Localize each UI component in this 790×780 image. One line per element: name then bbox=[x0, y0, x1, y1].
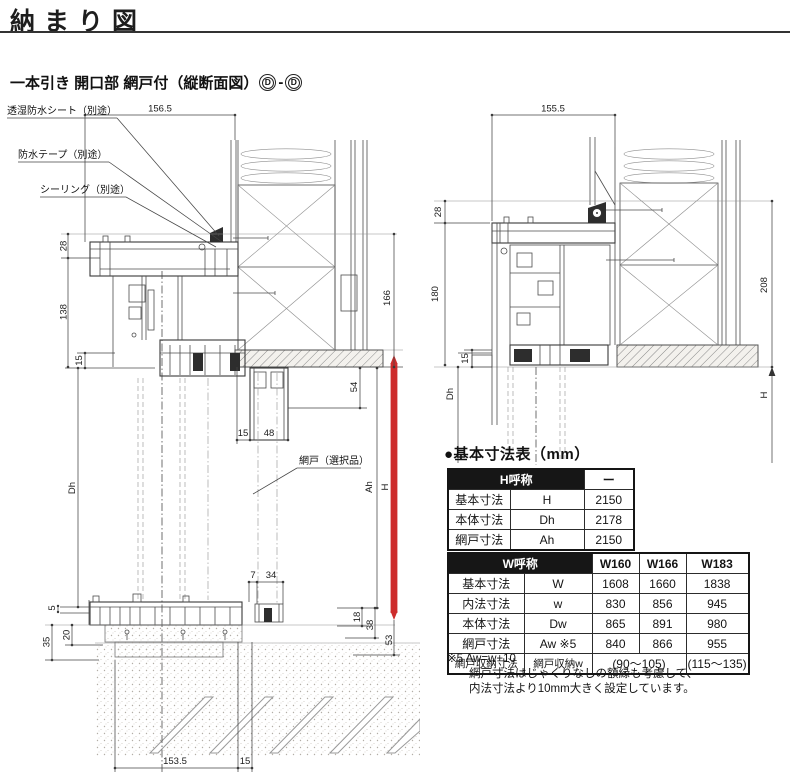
dim-label-53: 53 bbox=[384, 635, 395, 646]
insulation-hatch bbox=[624, 149, 714, 183]
callout-screen: 網戸（選択品） bbox=[299, 454, 369, 467]
section-mark-separator: - bbox=[278, 74, 283, 91]
table-row: 網戸寸法 Aw ※5 840 866 955 bbox=[448, 634, 749, 654]
left-section-drawing: 156.5 28 138 15 Dh 5 35 20 bbox=[5, 95, 420, 780]
table-row: 基本寸法 H 2150 bbox=[448, 490, 634, 510]
dim-label-screen-15: 15 bbox=[238, 428, 249, 439]
dim-label-ah: Ah bbox=[364, 481, 375, 493]
table-cell: 830 bbox=[592, 594, 639, 614]
table-cell: 本体寸法 bbox=[448, 614, 524, 634]
insulation-hatch bbox=[241, 149, 331, 183]
dim-label-left-15: 15 bbox=[74, 355, 85, 366]
table-cell: H bbox=[510, 490, 584, 510]
dim-label-18: 18 bbox=[352, 612, 363, 623]
drawing-subtitle: 一本引き 開口部 網戸付（縦断面図） D - D bbox=[10, 72, 303, 93]
dim-label-dh: Dh bbox=[67, 482, 78, 494]
dim-label-34: 34 bbox=[266, 570, 277, 581]
porch-slab bbox=[434, 345, 772, 367]
section-mark-icon: D bbox=[285, 74, 302, 91]
dimension-lines: 155.5 28 180 15 Dh 208 H bbox=[430, 104, 775, 464]
table-cell: 865 bbox=[592, 614, 639, 634]
dim-label-dh: Dh bbox=[445, 388, 456, 400]
table-cell: 2178 bbox=[584, 510, 634, 530]
table-cell: 955 bbox=[686, 634, 749, 654]
footnote-line: 網戸寸法はじゃくりなしの額縁も考慮して、 bbox=[447, 667, 777, 682]
table-cell: 網戸寸法 bbox=[448, 530, 510, 551]
table-header-cell: ー bbox=[584, 469, 634, 490]
head-frame-section bbox=[492, 202, 674, 367]
table-cell: Dh bbox=[510, 510, 584, 530]
dim-label-48: 48 bbox=[264, 428, 275, 439]
table-cell: 基本寸法 bbox=[448, 574, 524, 594]
table-cell: 1660 bbox=[639, 574, 686, 594]
table-row: 本体寸法 Dw 865 891 980 bbox=[448, 614, 749, 634]
table-header-row: W呼称 W160 W166 W183 bbox=[448, 553, 749, 574]
dim-label-15: 15 bbox=[460, 353, 471, 364]
bottom-frame-section bbox=[160, 340, 245, 376]
right-section-drawing: 155.5 28 180 15 Dh 208 H bbox=[420, 95, 790, 470]
h-spec-table: H呼称 ー 基本寸法 H 2150 本体寸法 Dh 2178 網戸寸法 Ah 2… bbox=[447, 468, 635, 551]
porch-slab bbox=[235, 350, 403, 367]
dim-label-7: 7 bbox=[250, 570, 255, 581]
table-cell: 2150 bbox=[584, 490, 634, 510]
table-cell: W bbox=[524, 574, 592, 594]
callout-sheet: 透湿防水シート（別途） bbox=[7, 104, 117, 117]
dim-label-153-5: 153.5 bbox=[163, 756, 187, 767]
table-header-row: H呼称 ー bbox=[448, 469, 634, 490]
table-cell: Aw ※5 bbox=[524, 634, 592, 654]
callout-tape: 防水テープ（別途） bbox=[18, 148, 107, 161]
footnote-line: ※5 Aw=w+10 bbox=[447, 652, 777, 667]
table-row: 網戸寸法 Ah 2150 bbox=[448, 530, 634, 551]
table-cell: 網戸寸法 bbox=[448, 634, 524, 654]
dim-label-bottom-15: 15 bbox=[240, 756, 251, 767]
dim-label-top-width: 156.5 bbox=[148, 104, 172, 115]
table-cell: Dw bbox=[524, 614, 592, 634]
screen-door-section bbox=[250, 368, 288, 622]
exterior-wall-section bbox=[231, 140, 367, 350]
table-cell: 866 bbox=[639, 634, 686, 654]
ground-hatch bbox=[95, 625, 420, 757]
dim-label-54: 54 bbox=[349, 382, 360, 393]
table-header-cell: W166 bbox=[639, 553, 686, 574]
footnote-line: 内法寸法より10mm大きく設定しています。 bbox=[447, 682, 777, 697]
table-row: 本体寸法 Dh 2178 bbox=[448, 510, 634, 530]
table-cell: 856 bbox=[639, 594, 686, 614]
dim-label-35: 35 bbox=[42, 637, 53, 648]
table-header-cell: W160 bbox=[592, 553, 639, 574]
section-mark-icon: D bbox=[259, 74, 276, 91]
table-cell: 本体寸法 bbox=[448, 510, 510, 530]
table-cell: Ah bbox=[510, 530, 584, 551]
callouts: 透湿防水シート（別途） 防水テープ（別途） シーリング（別途） 網戸（選択品） bbox=[7, 104, 369, 494]
exterior-wall-section bbox=[590, 137, 740, 345]
dim-label-38: 38 bbox=[365, 620, 376, 631]
dim-label-5: 5 bbox=[47, 605, 58, 610]
table-cell: 840 bbox=[592, 634, 639, 654]
table-row: 基本寸法 W 1608 1660 1838 bbox=[448, 574, 749, 594]
dim-label-top-width: 155.5 bbox=[541, 104, 565, 115]
dim-label-h: H bbox=[380, 483, 391, 490]
table-header-cell: W183 bbox=[686, 553, 749, 574]
spec-table-heading: ●基本寸法表（mm） bbox=[444, 443, 590, 464]
dim-label-208: 208 bbox=[759, 277, 770, 293]
table-header-cell: W呼称 bbox=[448, 553, 592, 574]
dim-label-h: H bbox=[759, 391, 770, 398]
dim-label-28: 28 bbox=[433, 207, 444, 218]
head-frame-section bbox=[65, 227, 238, 368]
callout-sealing: シーリング（別途） bbox=[40, 183, 130, 196]
dim-label-180: 180 bbox=[430, 286, 441, 302]
table-cell: 980 bbox=[686, 614, 749, 634]
footnote: ※5 Aw=w+10 網戸寸法はじゃくりなしの額縁も考慮して、 内法寸法より10… bbox=[447, 652, 777, 698]
table-cell: 基本寸法 bbox=[448, 490, 510, 510]
drawing-page: 納まり図 一本引き 開口部 網戸付（縦断面図） D - D bbox=[0, 0, 790, 780]
dim-label-28: 28 bbox=[59, 241, 70, 252]
dim-label-166: 166 bbox=[382, 290, 393, 306]
title-rule bbox=[0, 31, 790, 33]
table-cell: 2150 bbox=[584, 530, 634, 551]
subtitle-text: 一本引き 開口部 網戸付（縦断面図） bbox=[10, 72, 258, 93]
dim-label-20: 20 bbox=[62, 630, 73, 641]
red-h-bar bbox=[390, 355, 397, 620]
table-cell: 1608 bbox=[592, 574, 639, 594]
table-cell: 1838 bbox=[686, 574, 749, 594]
table-cell: w bbox=[524, 594, 592, 614]
table-cell: 891 bbox=[639, 614, 686, 634]
dim-label-138: 138 bbox=[59, 304, 70, 320]
table-row: 内法寸法 w 830 856 945 bbox=[448, 594, 749, 614]
table-header-cell: H呼称 bbox=[448, 469, 584, 490]
table-cell: 945 bbox=[686, 594, 749, 614]
table-cell: 内法寸法 bbox=[448, 594, 524, 614]
